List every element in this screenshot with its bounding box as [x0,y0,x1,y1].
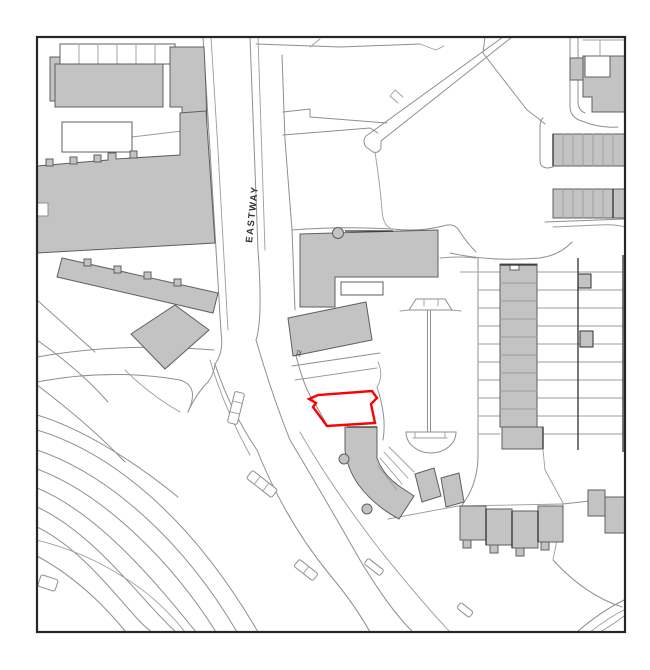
building-32 [288,302,372,356]
house [486,509,512,545]
building [415,468,441,502]
terrace-outline [60,44,175,64]
courtyard [62,122,132,152]
building [55,64,163,107]
house [538,506,563,542]
site-boundary [309,391,377,426]
garage-row [553,189,625,218]
road-label-eastway: EASTWAY [244,185,261,243]
house [512,511,538,548]
site-plan-map: EASTWAY 32 [0,0,650,670]
house [460,506,486,540]
walkway-canopy [409,299,452,310]
building [131,305,209,369]
site-location-plan: EASTWAY 32 [0,0,650,670]
building [441,473,464,507]
walkway-structure [400,299,461,453]
walkway-dish [406,432,456,453]
garage-row [553,134,625,166]
building [57,258,218,313]
terrace-block [500,264,537,427]
